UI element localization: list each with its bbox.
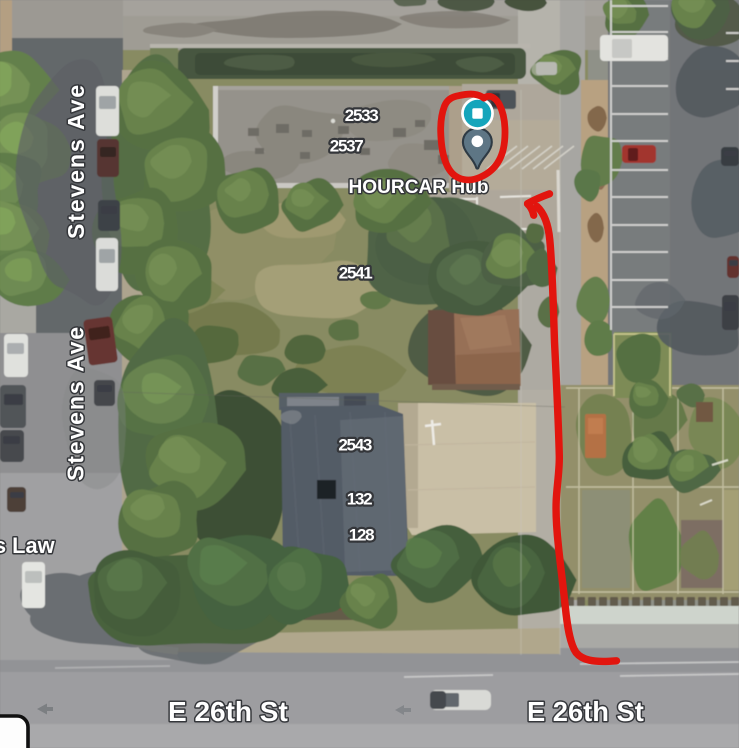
svg-text:Stevens Ave: Stevens Ave xyxy=(63,325,89,481)
svg-text:2541: 2541 xyxy=(339,264,372,283)
svg-text:128: 128 xyxy=(349,526,374,545)
svg-text:2533: 2533 xyxy=(345,106,378,125)
svg-text:2543: 2543 xyxy=(338,436,371,455)
svg-text:132: 132 xyxy=(347,490,372,509)
svg-text:E 26th St: E 26th St xyxy=(527,696,644,727)
svg-text:Stevens Ave: Stevens Ave xyxy=(63,83,89,239)
svg-text:s Law: s Law xyxy=(0,533,55,558)
svg-text:2537: 2537 xyxy=(330,137,363,156)
svg-text:E 26th St: E 26th St xyxy=(168,696,288,727)
